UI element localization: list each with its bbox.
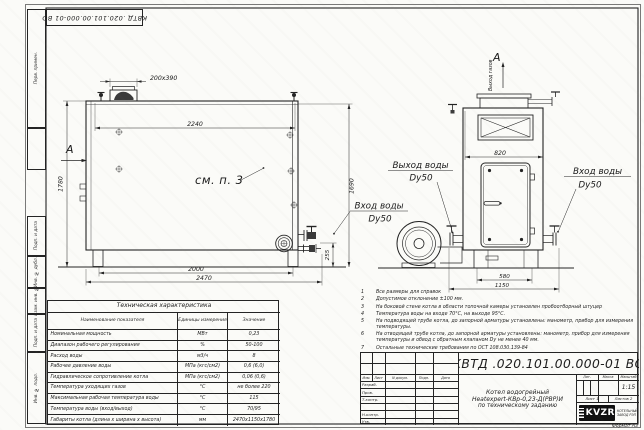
table-title: Техническая характеристика (48, 301, 280, 313)
water-inlet-callout-right: Вход воды Dy50 (557, 167, 631, 233)
note-item: 2Допустимое отклонение ±100 мм. (361, 297, 635, 303)
support-base (474, 250, 538, 268)
dim-flue: 200х390 (150, 75, 177, 82)
table-cell-value: 115 (228, 394, 280, 405)
table-cell-value: 0,6 (6,0) (228, 362, 280, 373)
water-inlet-label-right: Вход воды (573, 167, 622, 177)
dim-length: 2470 (196, 275, 212, 282)
table-cell-units: м3/ч (178, 351, 228, 362)
stamp-sprav (27, 128, 46, 170)
table-cell-name: Рабочее давление воды (48, 362, 178, 373)
dim-pipe-height: 255 (325, 249, 331, 260)
right-stub-valve (543, 226, 560, 246)
product-name-line3: по техническому заданию (478, 403, 557, 410)
gas-outlet-label: Выход газов (488, 59, 494, 91)
table-cell-name: Гидравлическое сопротивление котла (48, 373, 178, 384)
note-item: 5На подводящей трубе котла, до запорной … (361, 319, 635, 331)
note-text: Все размеры для справок (376, 290, 635, 296)
table-cell-name: Температура уходящих газов (48, 383, 178, 394)
note-item: 7Остальные технические требования по ОСТ… (361, 346, 635, 352)
col-header-units: Единицы измерения (178, 313, 228, 330)
table-cell-name: Номинальная мощность (48, 330, 178, 341)
hdr-izm: Изм. (361, 374, 372, 381)
water-inlet-callout-left: Вход воды Dy50 (333, 202, 408, 235)
note-number: 6 (361, 332, 376, 344)
left-stub-valve (447, 226, 464, 246)
inlet-valve (298, 227, 321, 254)
logo-stripes-icon (579, 408, 584, 418)
see-note-label: см. п. 3 (195, 173, 243, 187)
row-tkontr: Т.контр. (362, 396, 385, 403)
note-text: На боковой стене котла в области топочно… (376, 305, 635, 311)
top-hatch (478, 115, 533, 140)
table-cell-name: Расход воды (48, 351, 178, 362)
table-cell-name: Габариты котла (длина х ширина х высота) (48, 415, 178, 426)
hdr-list: Лист (372, 374, 385, 381)
blower-fan (397, 222, 462, 268)
stamp-perv-primen-label: Перв. примен. (34, 52, 39, 84)
dim-span: 2000 (188, 266, 204, 273)
note-text: Температура воды на входе 70°С, на выход… (376, 312, 635, 318)
note-text: Остальные технические требования по ОСТ … (376, 346, 635, 352)
hdr-sign: Подп. (415, 374, 433, 381)
format-label: Формат А3 (580, 424, 638, 430)
flue-outlet (110, 87, 137, 102)
tech-characteristics-table: Техническая характеристика Наименование … (47, 300, 279, 425)
stamp-podp-data-1-label: Подп. и дата (34, 221, 39, 250)
stamp-inv-dubl-label: Инв. № дубл. (34, 257, 39, 287)
stamp-podp-data-2: Подп. и дата (27, 314, 46, 352)
collar-side-pipe (528, 92, 560, 106)
table-cell-units: °С (178, 394, 228, 405)
table-cell-units: МВт (178, 330, 228, 341)
note-item: 1Все размеры для справок (361, 290, 635, 296)
table-cell-value: 2470х1150х1780 (228, 415, 280, 426)
panel-mark-icons (115, 128, 298, 209)
hdr-doc: N докум. (385, 374, 415, 381)
stamp-inv-podl: Инв. № подл. (27, 352, 46, 424)
note-item: 4Температура воды на входе 70°С, на выхо… (361, 312, 635, 318)
logo-text: KVZR (586, 408, 615, 418)
note-number: 7 (361, 346, 376, 352)
water-outlet-callout: Выход воды Dy50 (388, 161, 453, 233)
table-cell-name: Температура воды (вход/выход) (48, 404, 178, 415)
door-handle (484, 202, 500, 206)
view-a-label-left: А (65, 143, 74, 156)
scale-value: 1:15 (618, 380, 639, 395)
table-cell-units: МПа (кгс/см2) (178, 362, 228, 373)
view-labels: А А Выход газов см. п. 3 Выход воды Dy50… (61, 51, 631, 235)
sheet-count: Листов 2 (608, 395, 639, 402)
stamp-podp-data-1: Подп. и дата (27, 216, 46, 256)
table-cell-value: 0,06 (0,6) (228, 373, 280, 384)
note-item: 6На отводящей трубе котла, до запорной а… (361, 332, 635, 344)
burner-flange (276, 235, 293, 252)
table-cell-units: МПа (кгс/см2) (178, 373, 228, 384)
dim-front-length: 1150 (495, 283, 510, 289)
stamp-inv-podl-label: Инв. № подл. (34, 373, 39, 403)
technical-notes: 1Все размеры для справок 2Допустимое отк… (361, 290, 635, 353)
stamp-inv-dubl: Инв. № дубл. (27, 256, 46, 288)
row-razrab: Разраб. (362, 381, 385, 388)
table-cell-value: 50-100 (228, 341, 280, 352)
stamp-vzam-inv-label: Взам. инв. № (34, 286, 39, 316)
row-nkontr: Н.контр. (362, 410, 385, 418)
table-cell-units: мм (178, 415, 228, 426)
top-reference-stamp-text: КВТД .020.101.00.000-01 ВО (42, 14, 147, 22)
col-header-name: Наименование показателя (48, 313, 178, 330)
note-item: 3На боковой стене котла в области топочн… (361, 305, 635, 311)
title-block: КВТД .020.101.00.000-01 ВО Изм. Лист N д… (360, 352, 638, 424)
product-name-line2: Heatexpert-КВр-0,23-Д(РВР)И (472, 396, 563, 403)
boiler-front-view (378, 92, 574, 268)
stamp-vzam-inv: Взам. инв. № (27, 288, 46, 314)
hdr-date: Дата (433, 374, 458, 381)
drawing-sheet: 200х390 2240 1780 1690 255 (0, 0, 644, 430)
table-cell-value: 8 (228, 351, 280, 362)
stamp-perv-primen: Перв. примен. (27, 9, 46, 128)
furnace-door (481, 163, 535, 247)
document-designation: КВТД .020.101.00.000-01 ВО (458, 353, 639, 374)
table-cell-value: не более 220 (228, 383, 280, 394)
kvzr-logo: KVZR (579, 405, 615, 421)
product-name-line1: Котел водогрейный (486, 389, 549, 396)
row-utv: Утв. (362, 418, 385, 425)
table-cell-units: % (178, 341, 228, 352)
hdr-lit: Лит. (576, 374, 598, 380)
logo-subtitle-line2: ЗАВОД РЭП (617, 413, 639, 417)
logo-subtitle: КОТЕЛЬНЫЙ ЗАВОД РЭП (617, 405, 639, 421)
water-outlet-label: Выход воды (392, 161, 448, 171)
product-name: Котел водогрейный Heatexpert-КВр-0,23-Д(… (459, 375, 576, 424)
col-header-value: Значение (228, 313, 280, 330)
note-text: На подводящей трубе котла, до запорной а… (376, 319, 635, 331)
dim-height-right: 1690 (349, 178, 356, 194)
sheet-number: Лист 1 (576, 395, 608, 402)
row-prov: Пров. (362, 388, 385, 396)
dim-height-left: 1780 (58, 176, 65, 192)
table-cell-units: °С (178, 383, 228, 394)
water-inlet-label-left: Вход воды (354, 202, 403, 212)
note-number: 3 (361, 305, 376, 311)
note-text: Допустимое отклонение ±100 мм. (376, 297, 635, 303)
stamp-podp-data-2-label: Подп. и дата (34, 318, 39, 347)
note-text: На отводящей трубе котла, до запорной ар… (376, 332, 635, 344)
table-cell-value: 0,23 (228, 330, 280, 341)
dim-top-width: 2240 (187, 121, 203, 128)
table-cell-name: Диапазон рабочего регулирования (48, 341, 178, 352)
note-number: 4 (361, 312, 376, 318)
air-vent (448, 105, 457, 114)
table-cell-value: 70/95 (228, 404, 280, 415)
dim-front-width: 820 (494, 150, 506, 157)
dim-base-width: 580 (499, 274, 510, 280)
table-cell-name: Максимальная рабочая температура воды (48, 394, 178, 405)
water-inlet-dy-right: Dy50 (578, 181, 602, 191)
note-number: 2 (361, 297, 376, 303)
water-inlet-dy-left: Dy50 (368, 215, 392, 225)
hdr-mass: Масса (598, 374, 618, 380)
water-outlet-dy: Dy50 (409, 174, 433, 184)
note-number: 5 (361, 319, 376, 331)
table-cell-units: °С (178, 404, 228, 415)
note-number: 1 (361, 290, 376, 296)
top-reference-stamp: КВТД .020.101.00.000-01 ВО (46, 9, 143, 26)
